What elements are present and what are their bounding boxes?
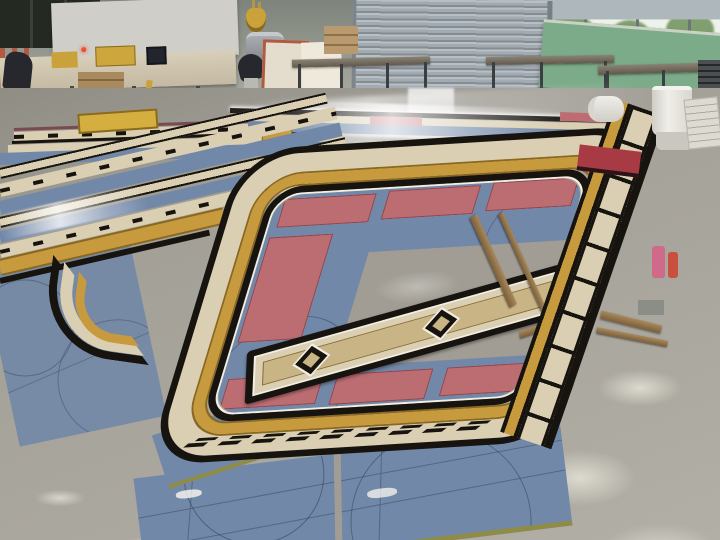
cardboard-boxes	[324, 26, 358, 54]
border-key-motif	[183, 442, 208, 447]
border-key-motif	[319, 434, 344, 439]
machine-head-yellow	[95, 45, 136, 66]
border-key-motif	[353, 432, 378, 437]
workshop-photo	[0, 0, 720, 540]
table-leg	[340, 64, 343, 91]
table-leg	[386, 63, 389, 91]
roller-shutter-door	[352, 0, 553, 95]
grey-box	[638, 300, 664, 315]
pink-bottle	[652, 246, 665, 278]
border-key-motif	[285, 436, 310, 441]
table-leg	[424, 62, 427, 90]
table-leg	[298, 64, 301, 90]
machine-part-yellow	[51, 51, 78, 68]
border-key-motif	[251, 438, 276, 443]
border-key-motif	[421, 428, 446, 433]
paper-roll	[588, 96, 624, 122]
border-key-motif	[387, 430, 412, 435]
crane-hook	[246, 8, 266, 32]
cement-bags	[683, 96, 720, 149]
control-monitor	[146, 46, 167, 65]
border-key-motif	[217, 440, 242, 445]
worker-left	[2, 51, 34, 92]
border-key-motif	[455, 426, 480, 431]
red-bottle	[668, 252, 678, 278]
